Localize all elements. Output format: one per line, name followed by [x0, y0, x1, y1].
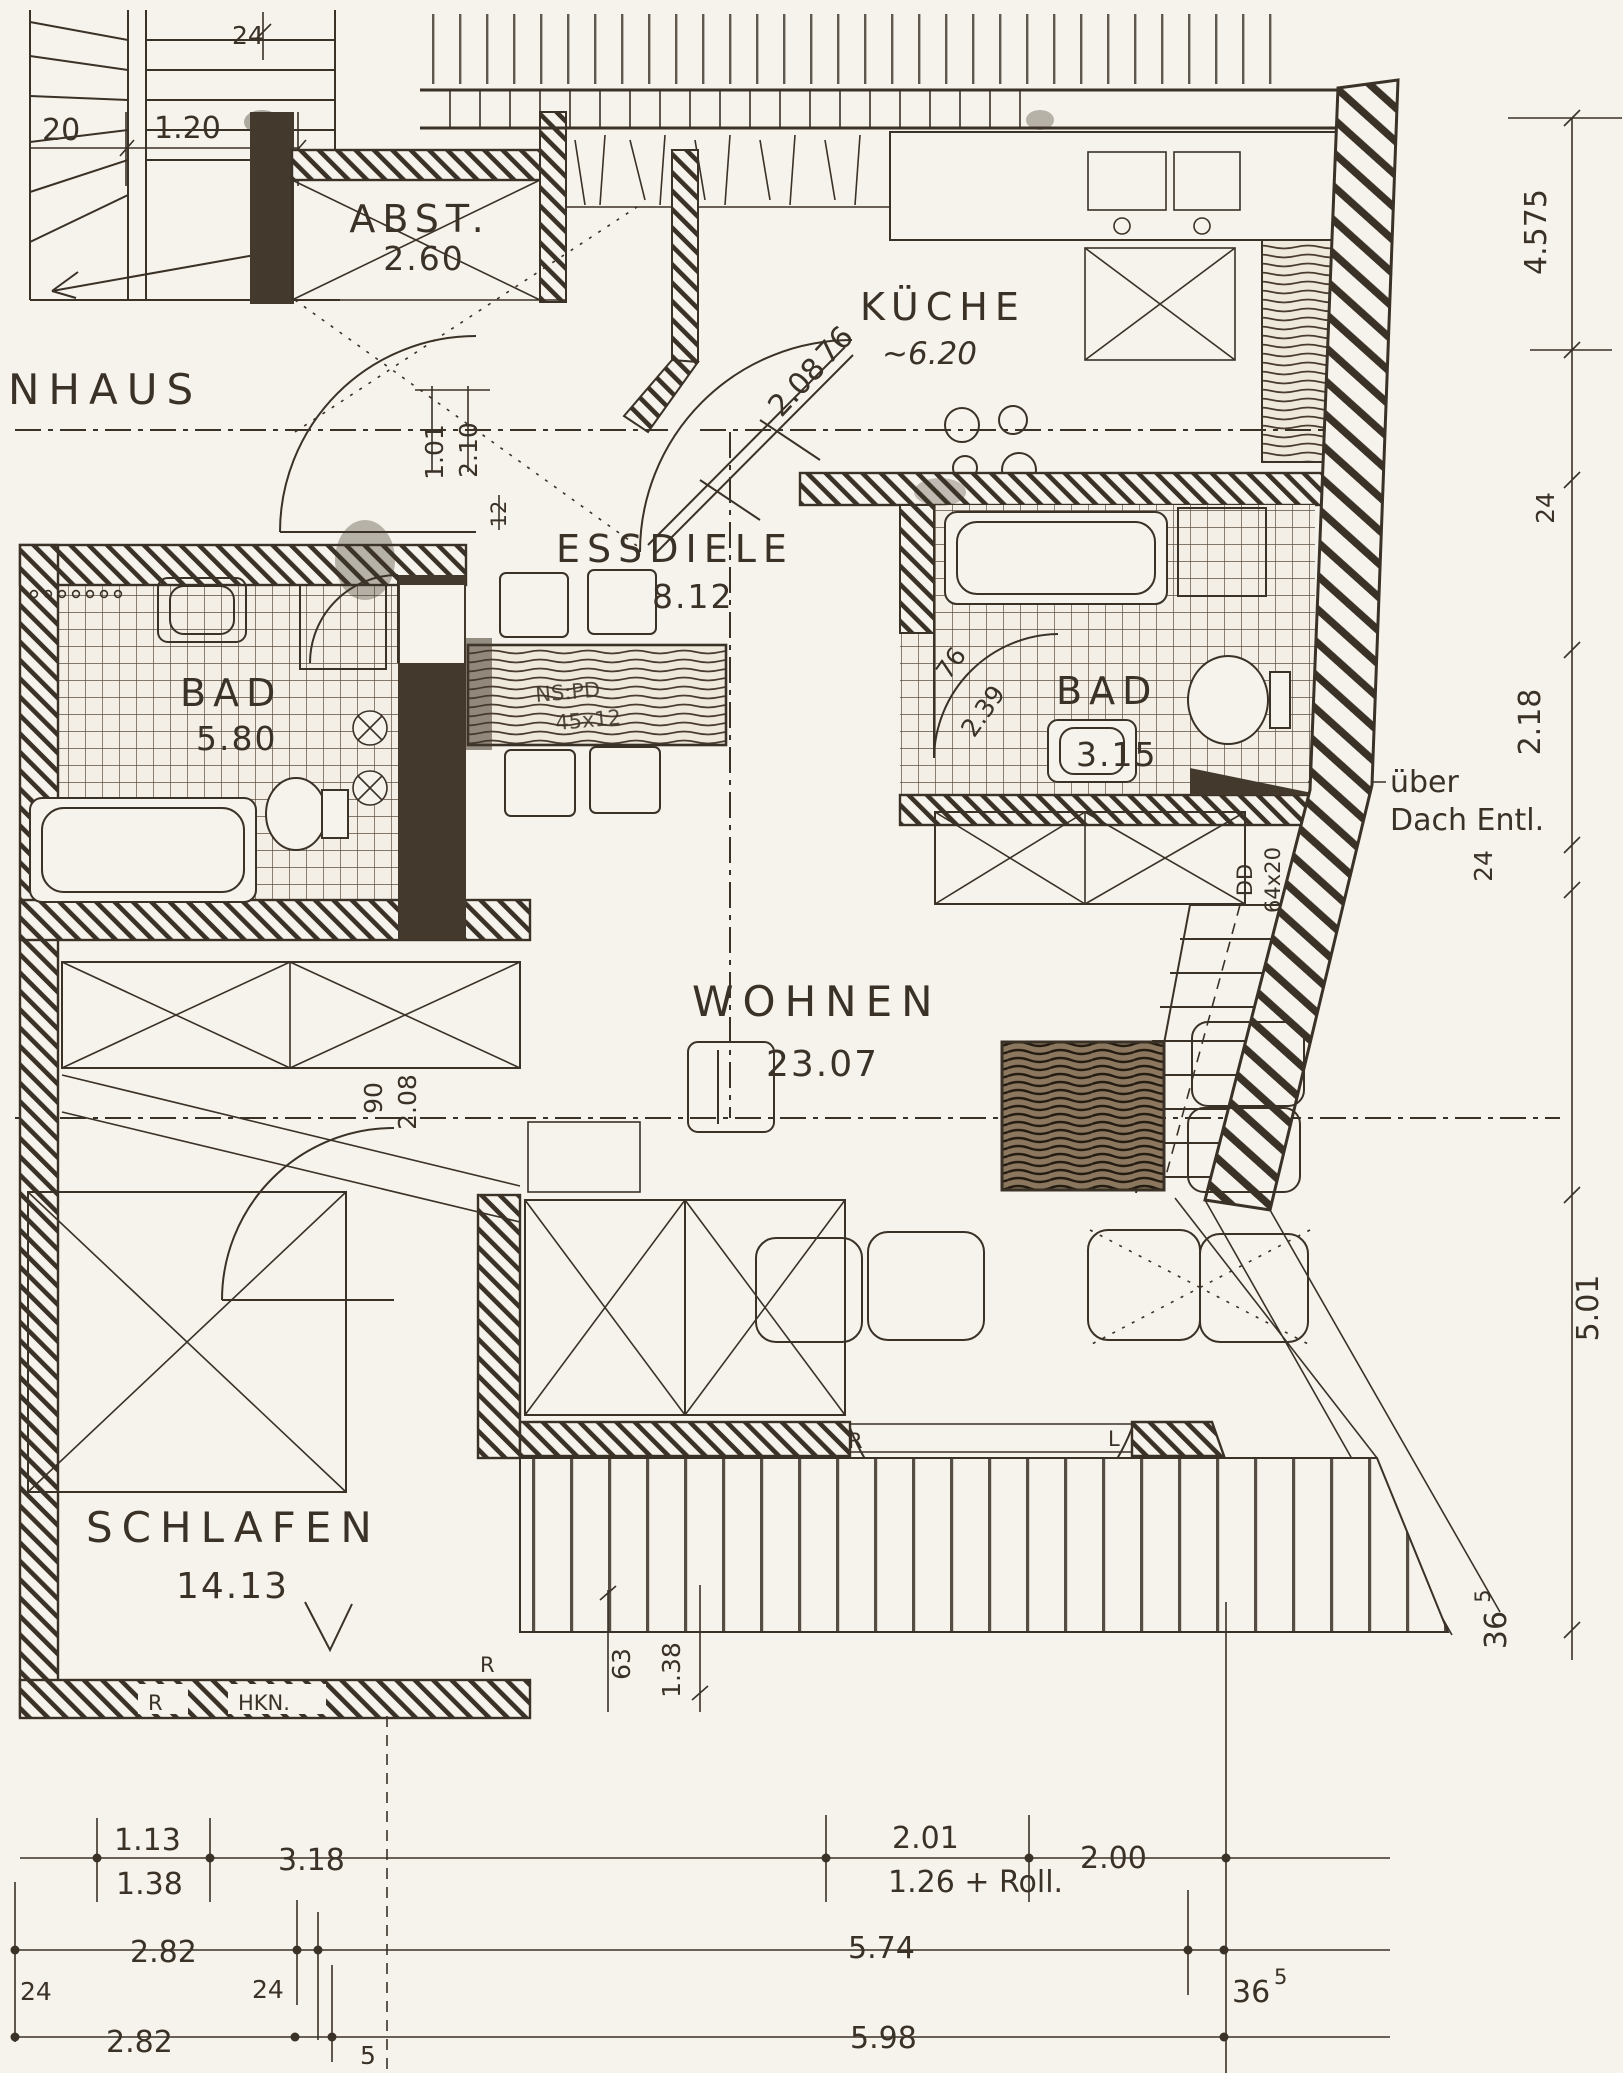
- kitchen-top-wall-ticks: [450, 90, 1020, 128]
- floor-plan-drawing: 20 1.20 24 NHAUS ABST. 2.60: [0, 0, 1623, 2073]
- bedroom-wardrobe: [62, 962, 520, 1068]
- vent-text-2: Dach Entl.: [1390, 803, 1544, 838]
- bath-left-door-gap: [400, 585, 464, 663]
- dim-row3-b: 5.98: [850, 2021, 917, 2056]
- dim-row2-wall-l: 24: [20, 1977, 52, 2006]
- wohnen-bottom-wall-right: [1132, 1422, 1224, 1456]
- right-dimension-chain: 4.575 24 2.18 24 5.01 36 5: [1469, 110, 1622, 1660]
- bedroom-wall-notch-r: [138, 1684, 188, 1714]
- bedroom-door-arc: [222, 1128, 394, 1300]
- dim-row3-a: 2.82: [106, 2025, 173, 2060]
- dim-row1-c-bot: 1.26 + Roll.: [888, 1865, 1063, 1900]
- bath-right-tub: [945, 512, 1167, 604]
- kitchen-area: ~6.20: [882, 336, 977, 372]
- kitchen-bottom-wall: [800, 473, 1340, 505]
- stairwell-label: NHAUS: [8, 365, 202, 414]
- mid-dim-b: 1.38: [657, 1642, 686, 1698]
- essdiele-area: 8.12: [652, 577, 733, 616]
- abst-kueche-wall: [540, 112, 566, 302]
- stair-stringer: [128, 10, 146, 300]
- right-dim-wall-mid: 24: [1469, 850, 1498, 882]
- hook-rail-label: HKN.: [238, 1691, 290, 1715]
- living-room: WOHNEN 23.07 R L 2.06: [478, 977, 1448, 1712]
- right-dim-wohnen: 5.01: [1571, 1275, 1606, 1342]
- bath-left-label: BAD: [180, 671, 282, 715]
- r-mark-wohnen: R: [480, 1653, 495, 1677]
- abst-label: ABST.: [349, 197, 490, 241]
- knee-wall-storage: [525, 1122, 845, 1415]
- scanned-floor-plan-page: 20 1.20 24 NHAUS ABST. 2.60: [0, 0, 1623, 2073]
- balcony-swing-right: L: [1108, 1427, 1120, 1451]
- abst-area: 2.60: [383, 239, 464, 278]
- kitchen-diagonal-jamb: [624, 360, 698, 432]
- kitchen-sink-bowl-right: [1174, 152, 1240, 210]
- bath-right-bottom-wall: [900, 795, 1324, 825]
- dim-row1-d: 2.00: [1080, 1841, 1147, 1876]
- wohnen-bottom-wall-left: [520, 1422, 850, 1456]
- duct-label: DD: [1233, 864, 1257, 896]
- outer-left-wall: [20, 545, 58, 1716]
- stair-tread-dim: 20: [42, 113, 80, 148]
- roof-slope-lines: [62, 1075, 520, 1222]
- attic-floor-band: [520, 1458, 1448, 1632]
- right-dim-top: 4.575: [1519, 189, 1554, 275]
- abst-top-wall: [292, 150, 545, 180]
- r-mark-schlafen: R: [148, 1691, 163, 1715]
- hall-wall-thickness: 12: [487, 501, 511, 528]
- wohnen-left-wall-pier: [478, 1195, 520, 1458]
- right-dim-base: 36: [1479, 1611, 1514, 1649]
- stair-flight-dim: 1.20: [154, 111, 221, 146]
- roof-stripe-band: [425, 14, 1280, 84]
- bedroom-door-height: 2.08: [393, 1074, 422, 1130]
- roof-projection-dotted: [295, 205, 640, 548]
- schlafen-label: SCHLAFEN: [86, 1503, 381, 1552]
- dim-row3-c: 5: [360, 2041, 376, 2070]
- schlafen-area: 14.13: [176, 1566, 289, 1607]
- balcony-threshold: [850, 1424, 1132, 1452]
- bathroom-right: 76 2.39 BAD 3.15: [900, 505, 1324, 825]
- small-cabinet: [528, 1122, 640, 1192]
- mid-dim-a: 63: [607, 1648, 636, 1680]
- kitchen-appliance-cross: [1085, 248, 1235, 360]
- right-dim-wall-top: 24: [1531, 492, 1560, 524]
- wohnen-label: WOHNEN: [692, 977, 942, 1026]
- dim-row1-a-bot: 1.38: [116, 1867, 183, 1902]
- right-dim-bad: 2.18: [1513, 689, 1548, 756]
- bath-left-area: 5.80: [196, 719, 277, 758]
- dim-row1-a-top: 1.13: [114, 1823, 181, 1858]
- right-dim-base-sup: 5: [1471, 1589, 1495, 1602]
- dim-row1-c-top: 2.01: [892, 1821, 959, 1856]
- bedroom: 90 2.08 R HKN. SCHLAFEN 14.13: [20, 962, 530, 1718]
- dim-row2-c: 36: [1232, 1975, 1270, 2010]
- dim-row2-wall-m: 24: [252, 1975, 284, 2004]
- wohnen-area: 23.07: [766, 1044, 879, 1085]
- bath-right-left-wall: [900, 505, 934, 633]
- essdiele-label: ESSDIELE: [556, 527, 794, 571]
- bath-left-tub: [30, 798, 256, 902]
- schlafen-leader-check: [305, 1602, 352, 1650]
- kitchen-left-wall: [672, 150, 698, 362]
- dim-row2-c-sup: 5: [1274, 1965, 1287, 1989]
- dim-row1-line: [20, 1815, 1390, 1902]
- vent-text-1: über: [1390, 765, 1460, 800]
- dim-row2-b: 5.74: [848, 1931, 915, 1966]
- kitchen-faucet-left: [1114, 218, 1130, 234]
- right-chain-lines: [1508, 110, 1622, 1660]
- stair-direction-arrow: [52, 255, 255, 298]
- bedroom-wardrobe-crosses: [62, 962, 520, 1068]
- sofa-seats: [756, 1230, 1308, 1342]
- coffee-table-wood: [1002, 1042, 1164, 1190]
- hall-door-width: 1.01: [420, 424, 449, 480]
- bed: [28, 1192, 346, 1492]
- kitchen-upper-cabinets: [565, 135, 890, 207]
- bath-right-area: 3.15: [1076, 735, 1157, 774]
- wall-pier-dark: [250, 112, 294, 304]
- top-wall-dim: 24: [232, 21, 264, 50]
- bath-right-label: BAD: [1056, 669, 1158, 713]
- dim-row1-b: 3.18: [278, 1843, 345, 1878]
- dim-row2-a: 2.82: [130, 1935, 197, 1970]
- balcony-swing-left: R: [848, 1429, 863, 1453]
- kitchen-sink-bowl-left: [1088, 152, 1166, 210]
- bedroom-door-width: 90: [359, 1082, 388, 1114]
- kitchen-label: KÜCHE: [860, 285, 1026, 329]
- kitchen-faucet-right: [1194, 218, 1210, 234]
